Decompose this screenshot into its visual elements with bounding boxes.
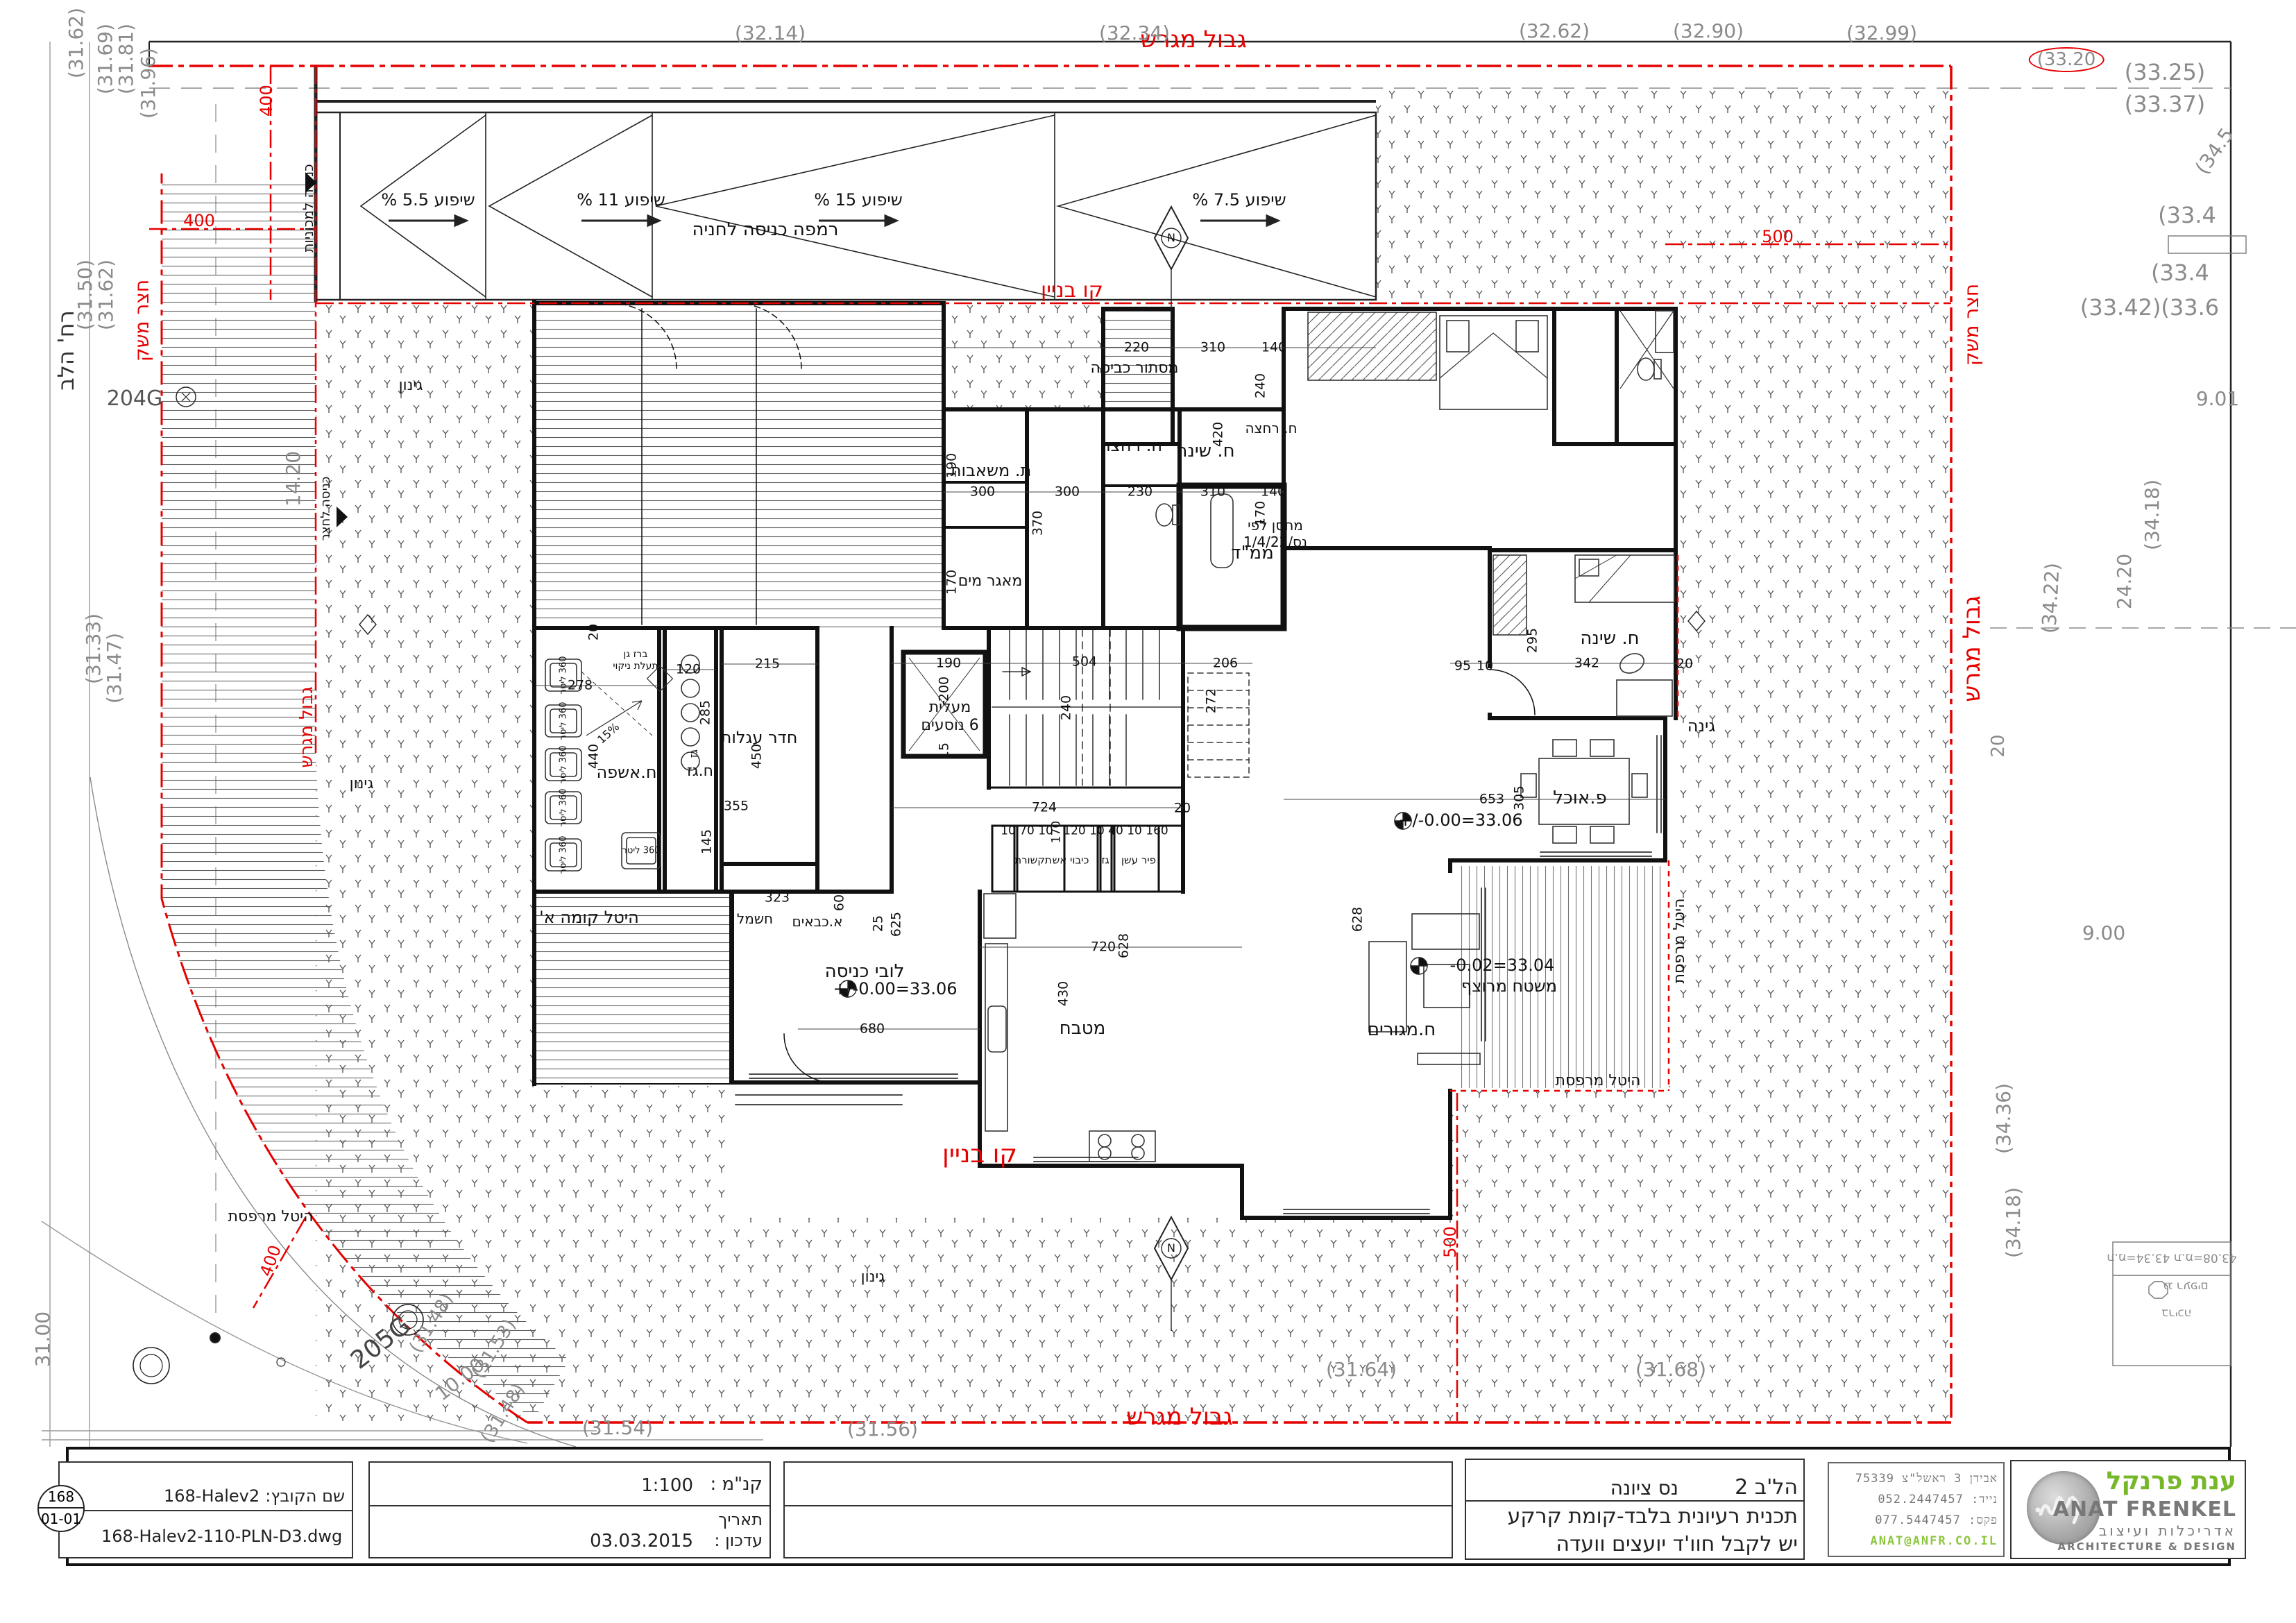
plan-subtitle-1: תכנית רעיונית בלבד-קומת קרקע <box>1508 1504 1798 1529</box>
scale-label: קנ"מ : <box>711 1474 763 1495</box>
divider <box>785 1505 1452 1506</box>
file-dwg-name: 168-Halev2-110-PLN-D3.dwg <box>101 1527 342 1546</box>
divider <box>370 1505 769 1506</box>
scale-value: 1:100 <box>641 1475 693 1496</box>
project-city: נס ציונה <box>1610 1477 1678 1499</box>
plan-drawing <box>0 0 2296 1623</box>
title-block: 168 01-01 שם הקובץ: 168-Halev2 168-Halev… <box>66 1447 2231 1566</box>
divider <box>60 1510 352 1511</box>
architect-logo-box: ענת פרנקל ANAT FRENKEL אדריכלות ועיצוב A… <box>2010 1460 2246 1559</box>
file-label: שם הקובץ: <box>265 1486 345 1506</box>
logo-name-he: ענת פרנקל <box>2107 1467 2236 1495</box>
plan-subtitle-2: יש לקבל חוו'ד יועצים וועדה <box>1556 1532 1798 1556</box>
architectural-plan-sheet: גבול מגרשגבול מגרשגבול מגרשגבול מגרשחצר … <box>0 0 2296 1623</box>
logo-sub-en: ARCHITECTURE & DESIGN <box>2058 1540 2236 1553</box>
architect-mobile: נייד: 052.2447457 <box>1878 1493 1998 1506</box>
date-label-1: תאריך <box>718 1510 763 1529</box>
architect-fax: פקס: 077.5447457 <box>1875 1513 1998 1527</box>
revision-box <box>783 1461 1453 1558</box>
divider <box>1466 1500 1803 1502</box>
sheet-revision: 01-01 <box>39 1509 83 1529</box>
date-value: 03.03.2015 <box>590 1531 693 1552</box>
architect-address: אבידן 3 ראשל"צ 75339 <box>1855 1472 1998 1486</box>
project-title-box: הל'ב 2 נס ציונה תכנית רעיונית בלבד-קומת … <box>1465 1459 1805 1560</box>
file-name: 168-Halev2 <box>164 1486 260 1506</box>
sheet-number: 168 <box>39 1486 83 1509</box>
sheet-number-badge: 168 01-01 <box>37 1485 85 1532</box>
balcony-paving <box>1457 866 1665 1088</box>
architect-contact-box: אבידן 3 ראשל"צ 75339 נייד: 052.2447457 פ… <box>1828 1462 2005 1557</box>
architect-email: ANAT@ANFR.CO.IL <box>1870 1534 1998 1548</box>
logo-sub-he: אדריכלות ועיצוב <box>2099 1522 2236 1539</box>
file-info-box: 168 01-01 שם הקובץ: 168-Halev2 168-Halev… <box>58 1461 353 1558</box>
scale-date-box: קנ"מ : 1:100 תאריך עדכון : 03.03.2015 <box>368 1461 771 1558</box>
logo-name-en: ANAT FRENKEL <box>2053 1497 2236 1522</box>
date-label-2: עדכון : <box>714 1531 763 1550</box>
project-code: הל'ב 2 <box>1735 1475 1798 1499</box>
